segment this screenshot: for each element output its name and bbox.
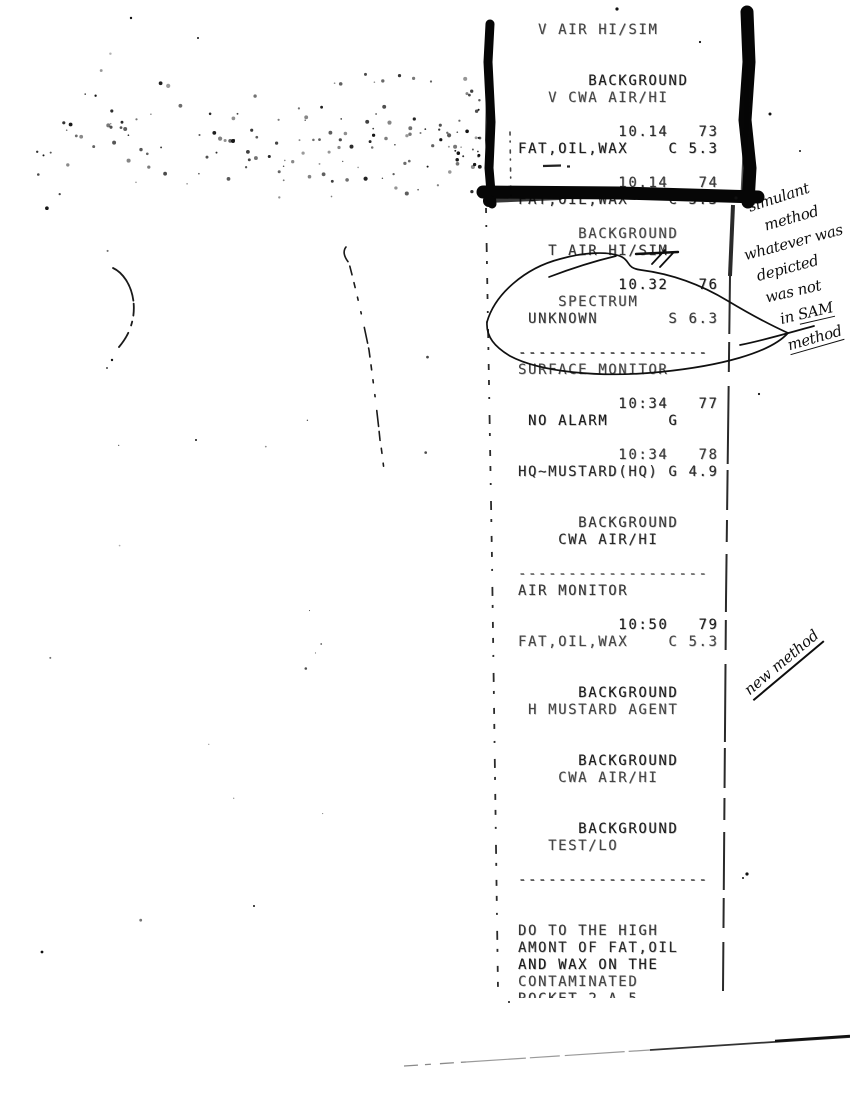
receipt-line: AIR MONITOR [518,583,754,600]
receipt-line: BACKGROUND [518,685,754,702]
receipt-line [518,549,754,566]
receipt-line: V AIR HI/SIM [518,22,754,39]
receipt-line [518,736,754,753]
receipt-line [518,651,754,668]
crease-line-center [344,247,384,470]
receipt-line [518,906,754,923]
marker-box-left-bar [488,24,492,204]
receipt-line [518,379,754,396]
receipt-line [518,260,754,277]
receipt-line [518,855,754,872]
receipt-printout: V AIR HI/SIM BACKGROUND V CWA AIR/HI 10.… [518,22,754,998]
receipt-line: DO TO THE HIGH [518,923,754,940]
receipt-line: HQ~MUSTARD(HQ) G 4.9 [518,464,754,481]
receipt-line: BACKGROUND [518,753,754,770]
receipt-line: 10:50 79 [518,617,754,634]
receipt-line: SURFACE MONITOR [518,362,754,379]
receipt-line: BACKGROUND [518,226,754,243]
bottom-line-dark [650,1037,850,1050]
receipt-line [518,787,754,804]
receipt-line [518,107,754,124]
receipt-line [518,430,754,447]
receipt-line: CONTAMINATED [518,974,754,991]
receipt-line: SPECTRUM [518,294,754,311]
photocopy-speckle-noise [36,52,482,921]
receipt-line [518,600,754,617]
receipt-line: ------------------- [518,566,754,583]
receipt-left-border [486,208,498,990]
receipt-line [518,804,754,821]
receipt-line: T AIR HI/SIM [518,243,754,260]
bottom-line-darkest [775,1036,850,1041]
receipt-line: TEST/LO [518,838,754,855]
receipt-line: CWA AIR/HI [518,532,754,549]
receipt-line: FAT,OIL,WAX C 5.3 [518,192,754,209]
handwritten-note-line: in SAM [778,298,835,328]
receipt-line: H MUSTARD AGENT [518,702,754,719]
receipt-line: ------------------- [518,345,754,362]
receipt-line: 10.32 76 [518,277,754,294]
handwritten-note-new-method-text: new method [741,626,825,701]
receipt-line: BACKGROUND [518,821,754,838]
receipt-line: 10.14 74 [518,175,754,192]
receipt-line: 10.14 73 [518,124,754,141]
receipt-line: BACKGROUND [518,73,754,90]
handwritten-note-line: method [785,322,844,356]
marker-box-left-bar-rough [487,40,491,200]
receipt-line [518,209,754,226]
receipt-line [518,498,754,515]
receipt-line: ------------------- [518,872,754,889]
underlined-word: SAM [796,298,835,325]
receipt-line [518,328,754,345]
receipt-line: NO ALARM G [518,413,754,430]
crease-curve-left [113,268,134,347]
receipt-line: V CWA AIR/HI [518,90,754,107]
inner-fold-dotted-line [510,132,511,200]
receipt-line [518,39,754,56]
receipt-line: CWA AIR/HI [518,770,754,787]
receipt-line [518,668,754,685]
bottom-scan-line [404,1036,850,1066]
receipt-line: 10:34 78 [518,447,754,464]
receipt-line [518,481,754,498]
bottom-line-faint-dashes [404,1062,466,1066]
scanned-page: V AIR HI/SIM BACKGROUND V CWA AIR/HI 10.… [0,0,850,1093]
receipt-line [518,889,754,906]
bottom-line-mid [466,1050,650,1062]
receipt-line: AND WAX ON THE [518,957,754,974]
marker-blob [483,195,495,207]
receipt-line: BACKGROUND [518,515,754,532]
receipt-line [518,56,754,73]
receipt-line: 10:34 77 [518,396,754,413]
receipt-line: AMONT OF FAT,OIL [518,940,754,957]
receipt-line [518,719,754,736]
receipt-line: FAT,OIL,WAX C 5.3 [518,634,754,651]
receipt-line: UNKNOWN S 6.3 [518,311,754,328]
paper-crease-marks [113,247,384,470]
handwritten-note-new-method: new method [752,618,850,718]
receipt-line: ROCKET 2 A 5 [518,991,754,998]
receipt-line [518,158,754,175]
receipt-line: FAT,OIL,WAX C 5.3 [518,141,754,158]
